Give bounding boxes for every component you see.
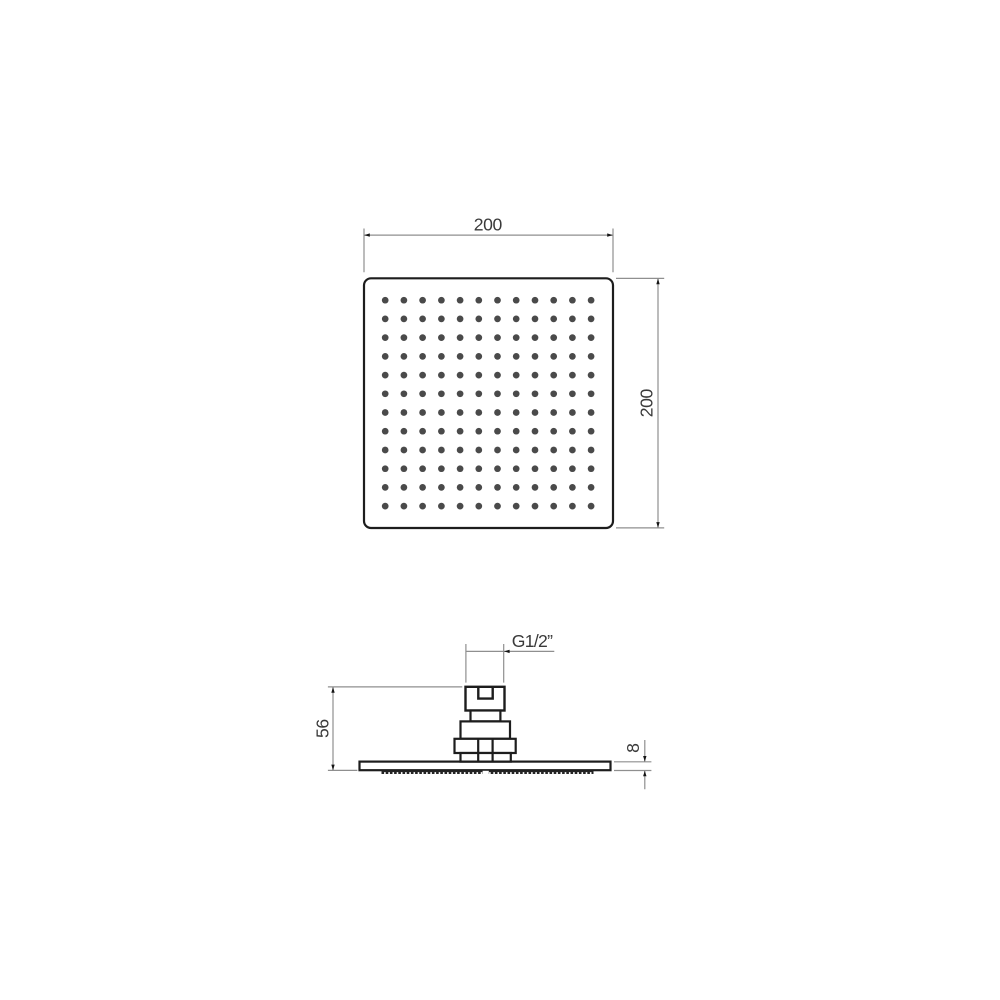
svg-text:200: 200 <box>474 214 503 234</box>
svg-text:8: 8 <box>623 743 643 753</box>
svg-text:200: 200 <box>636 389 656 418</box>
svg-text:G1/2”: G1/2” <box>512 631 553 651</box>
svg-text:56: 56 <box>313 719 333 738</box>
